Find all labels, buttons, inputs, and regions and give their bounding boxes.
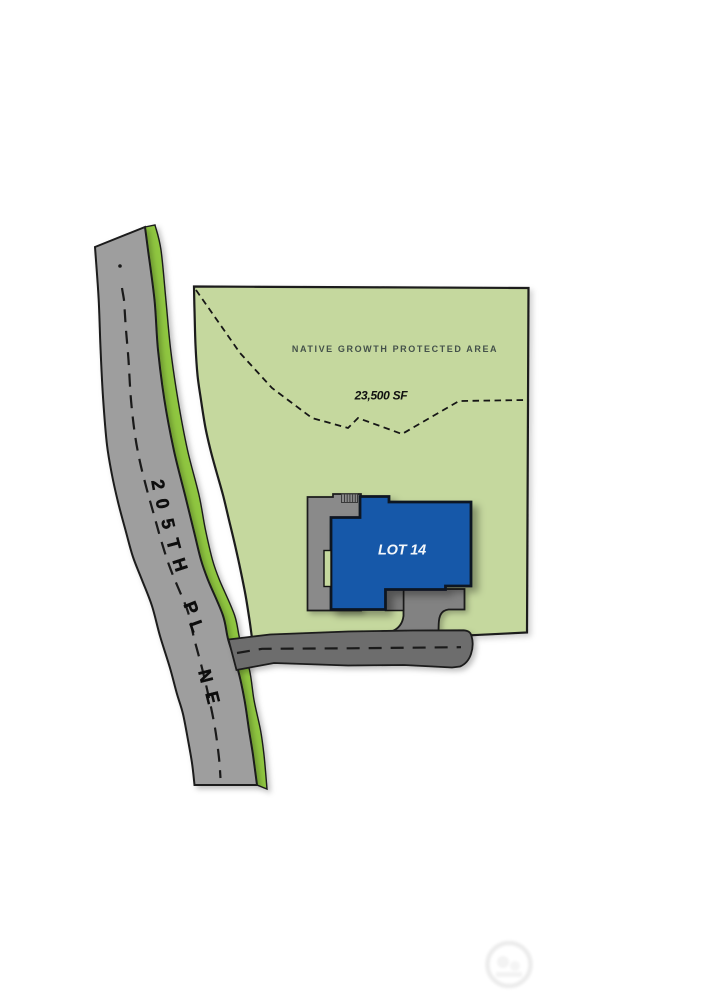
svg-text:23,500 SF: 23,500 SF: [354, 389, 409, 403]
svg-text:NATIVE GROWTH PROTECTED AREA: NATIVE GROWTH PROTECTED AREA: [292, 344, 498, 354]
svg-text:LOT 14: LOT 14: [378, 543, 426, 559]
